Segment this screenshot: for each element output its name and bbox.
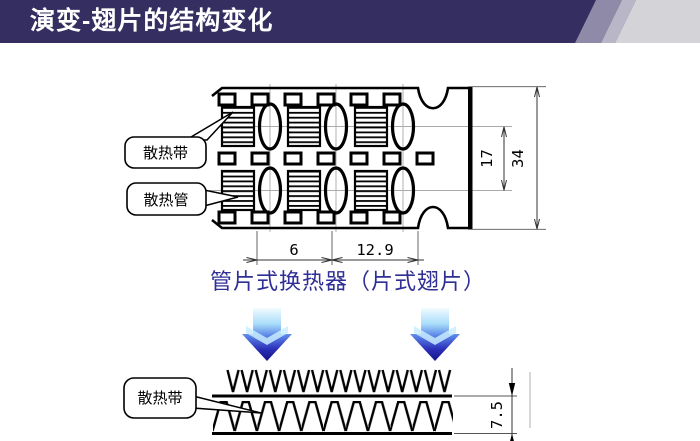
corrugated-fin-drawing: 7.5 散热带 (124, 368, 530, 441)
tube-fin-core-drawing: 17 34 6 12.9 (125, 84, 546, 294)
callout-fin-strip-label: 散热带 (143, 145, 188, 162)
transition-arrows (242, 308, 460, 361)
technical-drawing: 17 34 6 12.9 (0, 0, 700, 441)
dim-6-label: 6 (289, 241, 298, 259)
core-right-edge (468, 87, 473, 230)
down-arrow-icon-left (242, 308, 292, 361)
slot-row-middle (219, 153, 433, 164)
caption-text: 管片式换热器（片式翅片） (210, 269, 486, 294)
dimension-7.5: 7.5 (454, 368, 530, 441)
slide: 演变-翅片的结构变化 (0, 0, 700, 441)
corrugated-fin-band (213, 401, 453, 432)
slot-row-top (219, 94, 400, 105)
fin-v-row (226, 369, 452, 394)
dimension-17: 17 (478, 127, 507, 191)
dim-17-label: 17 (478, 149, 496, 168)
dimension-6-12.9: 6 12.9 (243, 231, 424, 265)
callout-fin-strip-bottom-label: 散热带 (137, 390, 182, 407)
down-arrow-icon-right (410, 308, 460, 361)
callout-tube-label: 散热管 (143, 192, 188, 209)
dim-12.9-label: 12.9 (356, 241, 393, 259)
callout-fin-strip: 散热带 (125, 112, 233, 168)
slot-row-bottom (219, 212, 400, 223)
dim-34-label: 34 (509, 149, 527, 168)
dim-7.5-label: 7.5 (488, 401, 506, 429)
